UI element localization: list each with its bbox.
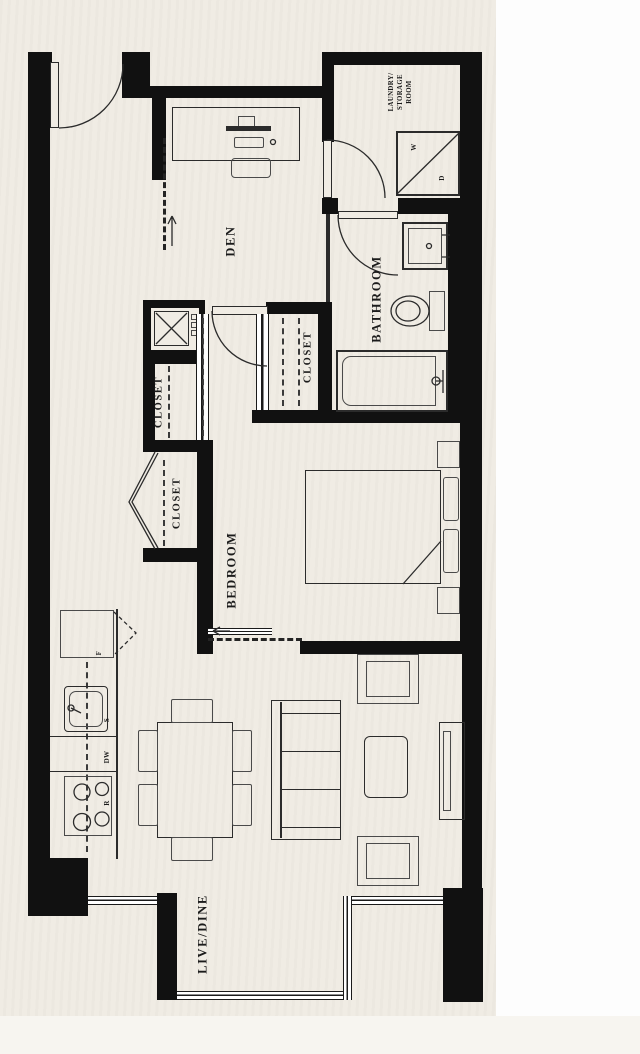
page-margin-bottom [0, 1016, 640, 1054]
den-slider-dashes [163, 138, 166, 250]
dining-chair-left-2 [138, 784, 158, 826]
desk-chair [231, 158, 271, 178]
dining-chair-top [171, 699, 213, 723]
dw-line-bottom [50, 771, 116, 772]
label-den: DEN [224, 225, 239, 256]
label-laundry-storage: LAUNDRY/ STORAGE ROOM [388, 73, 414, 112]
desk-paper [234, 137, 264, 148]
label-bedroom: BEDROOM [225, 531, 240, 608]
wall-right-living [462, 654, 482, 890]
tv-console-inner [443, 731, 451, 811]
den-entry-arrow [168, 216, 176, 246]
bathroom-door-arc [338, 215, 398, 275]
wall-bedroom-south [300, 641, 464, 654]
wall-left [28, 52, 50, 858]
armchair-bottom-seat [366, 843, 410, 879]
fridge [60, 610, 114, 658]
toilet-tank [429, 291, 445, 331]
label-washer: W [410, 143, 418, 150]
closet-bed-rod-2 [298, 318, 300, 406]
entry-door-leaf [50, 62, 59, 128]
dining-chair-right-2 [232, 784, 252, 826]
closet-bed-track [256, 314, 269, 410]
window-bay-side [343, 896, 352, 1000]
closet-bed-rod-1 [282, 318, 284, 406]
wall-right-bedroom [460, 422, 482, 654]
wall-bath-west-line [326, 214, 330, 306]
window-southeast [352, 896, 443, 905]
nightstand-1 [437, 441, 460, 468]
label-bathroom: BATHROOM [370, 255, 385, 343]
bedroom-slider-track [208, 628, 272, 635]
page-margin-right [496, 0, 640, 1054]
label-dishwasher: DW [103, 751, 111, 764]
closet-b-doors [129, 452, 158, 549]
dining-chair-left-1 [138, 730, 158, 772]
dining-chair-bottom [171, 837, 213, 861]
floorplan: DEN BEDROOM BATHROOM LIVE/DINE LAUNDRY/ … [0, 0, 640, 1054]
kitchen-counter-edge [116, 609, 118, 859]
laundry-door-leaf [323, 140, 332, 198]
entry-door-arc [59, 64, 123, 128]
bathroom-door-leaf [338, 211, 398, 219]
desk-keyboard [226, 126, 271, 131]
mech-unit-box [154, 311, 189, 346]
wall-bedroom-closet-right [318, 302, 332, 414]
label-fridge: F [95, 651, 103, 656]
coffee-table [364, 736, 408, 798]
dining-chair-right-1 [232, 730, 252, 772]
wall-entry-jamb [122, 52, 150, 98]
sofa-back-line [280, 702, 282, 838]
wall-pier-bottom-left [157, 893, 177, 1000]
closet-a-track-dash [202, 318, 204, 436]
pillow-2 [443, 529, 459, 573]
toilet-bowl [391, 296, 429, 326]
wall-right-upper [460, 52, 482, 204]
wall-den-top [148, 86, 332, 98]
label-live-dine: LIVE/DINE [196, 894, 211, 974]
label-sink: S [103, 718, 111, 722]
wall-laundry-top [332, 52, 480, 65]
wall-bath-right [448, 204, 482, 422]
label-closet-a: CLOSET [154, 376, 165, 428]
window-southwest [88, 896, 157, 905]
label-closet-b: CLOSET [172, 477, 183, 529]
label-dryer: D [438, 175, 446, 180]
kitchen-sink-basin [69, 691, 103, 727]
wall-bedroom-left [197, 440, 213, 654]
wall-den-laundry-divider [322, 52, 334, 142]
bedroom-slider-dashes [208, 638, 302, 641]
sofa-arm-top [282, 713, 340, 714]
closet-a-rod [168, 366, 170, 438]
label-range: R [103, 800, 111, 805]
sofa [271, 700, 341, 840]
bed [305, 470, 441, 584]
vanity-basin [408, 228, 442, 264]
closet-b-rod [163, 460, 165, 546]
toilet-bowl-inner [396, 301, 420, 321]
laundry-door-arc [327, 140, 385, 198]
pillow-1 [443, 477, 459, 521]
wall-closet-a-bottom [143, 440, 205, 452]
range [64, 776, 112, 836]
sofa-cushion-1 [282, 751, 340, 752]
wall-pier-bottom-right [443, 888, 483, 1002]
label-closet-bedroom: CLOSET [303, 331, 314, 383]
armchair-top-seat [366, 661, 410, 697]
dining-table [157, 722, 233, 838]
sofa-arm-bottom [282, 827, 340, 828]
wall-bath-north-a [322, 198, 338, 214]
washer-dryer-box [396, 131, 460, 196]
wall-corner-bottom-left [28, 858, 88, 916]
wall-entry-top [28, 52, 52, 64]
dw-line-top [50, 736, 116, 737]
nightstand-2 [437, 587, 460, 614]
sofa-cushion-2 [282, 789, 340, 790]
window-bay-bottom [177, 991, 347, 1000]
desk [172, 107, 300, 161]
bathtub-basin [342, 356, 436, 406]
